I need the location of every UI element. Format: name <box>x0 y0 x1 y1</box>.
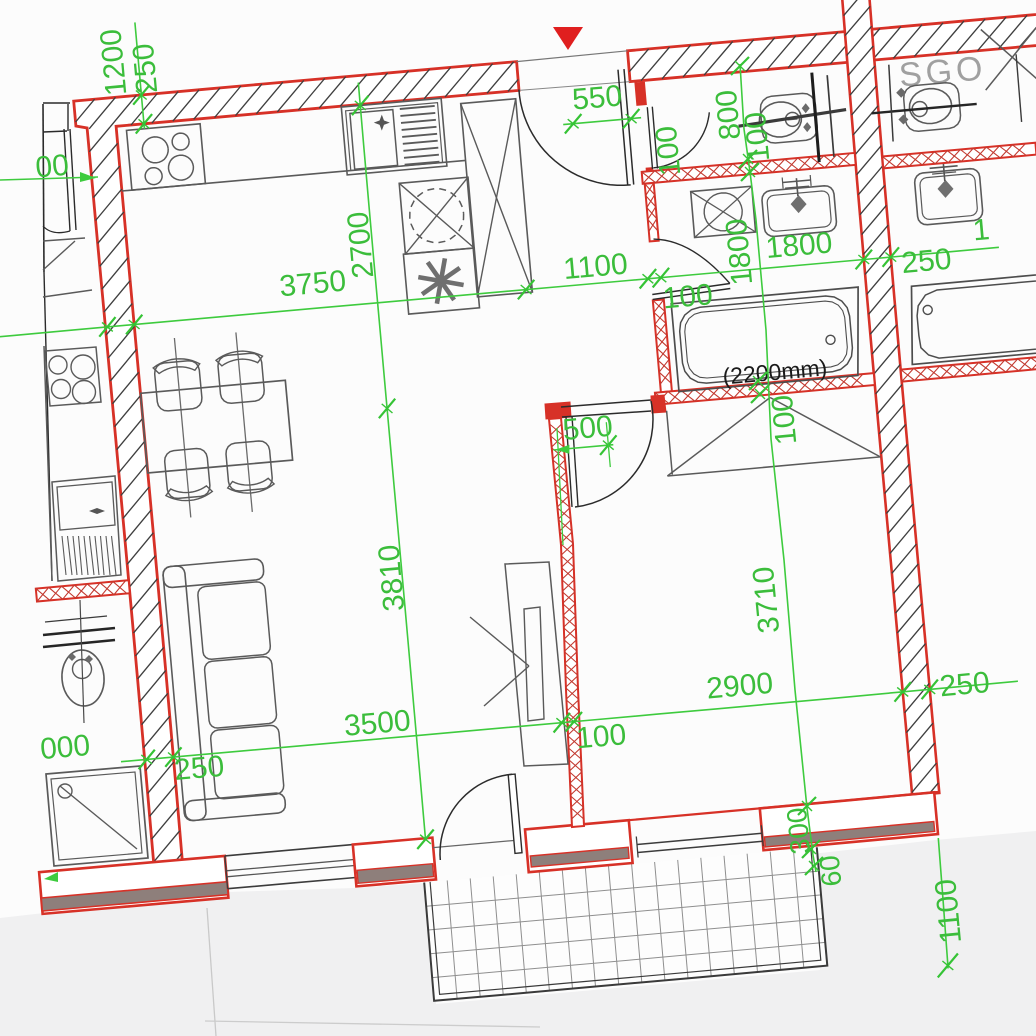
svg-text:3500: 3500 <box>343 704 412 743</box>
svg-text:1100: 1100 <box>929 878 968 945</box>
svg-text:3750: 3750 <box>278 265 347 304</box>
svg-text:60: 60 <box>814 854 848 888</box>
svg-text:100: 100 <box>739 110 777 163</box>
svg-text:1100: 1100 <box>562 248 629 287</box>
svg-text:250: 250 <box>173 750 226 787</box>
svg-text:300: 300 <box>781 806 816 855</box>
svg-text:1: 1 <box>971 213 991 247</box>
svg-text:3710: 3710 <box>747 565 786 635</box>
svg-text:1800: 1800 <box>720 217 759 287</box>
svg-text:550: 550 <box>571 79 624 116</box>
svg-text:00: 00 <box>34 149 70 185</box>
svg-text:000: 000 <box>39 729 92 766</box>
svg-text:250: 250 <box>938 666 991 703</box>
svg-text:250: 250 <box>900 243 953 280</box>
svg-text:100: 100 <box>575 718 628 755</box>
svg-text:250: 250 <box>127 42 164 95</box>
svg-text:SGO: SGO <box>897 49 988 95</box>
svg-text:3810: 3810 <box>372 543 411 612</box>
svg-text:1800: 1800 <box>764 226 833 265</box>
svg-text:2900: 2900 <box>705 667 774 706</box>
svg-text:100: 100 <box>661 278 714 315</box>
svg-text:100: 100 <box>766 393 804 446</box>
svg-text:100: 100 <box>650 124 688 177</box>
